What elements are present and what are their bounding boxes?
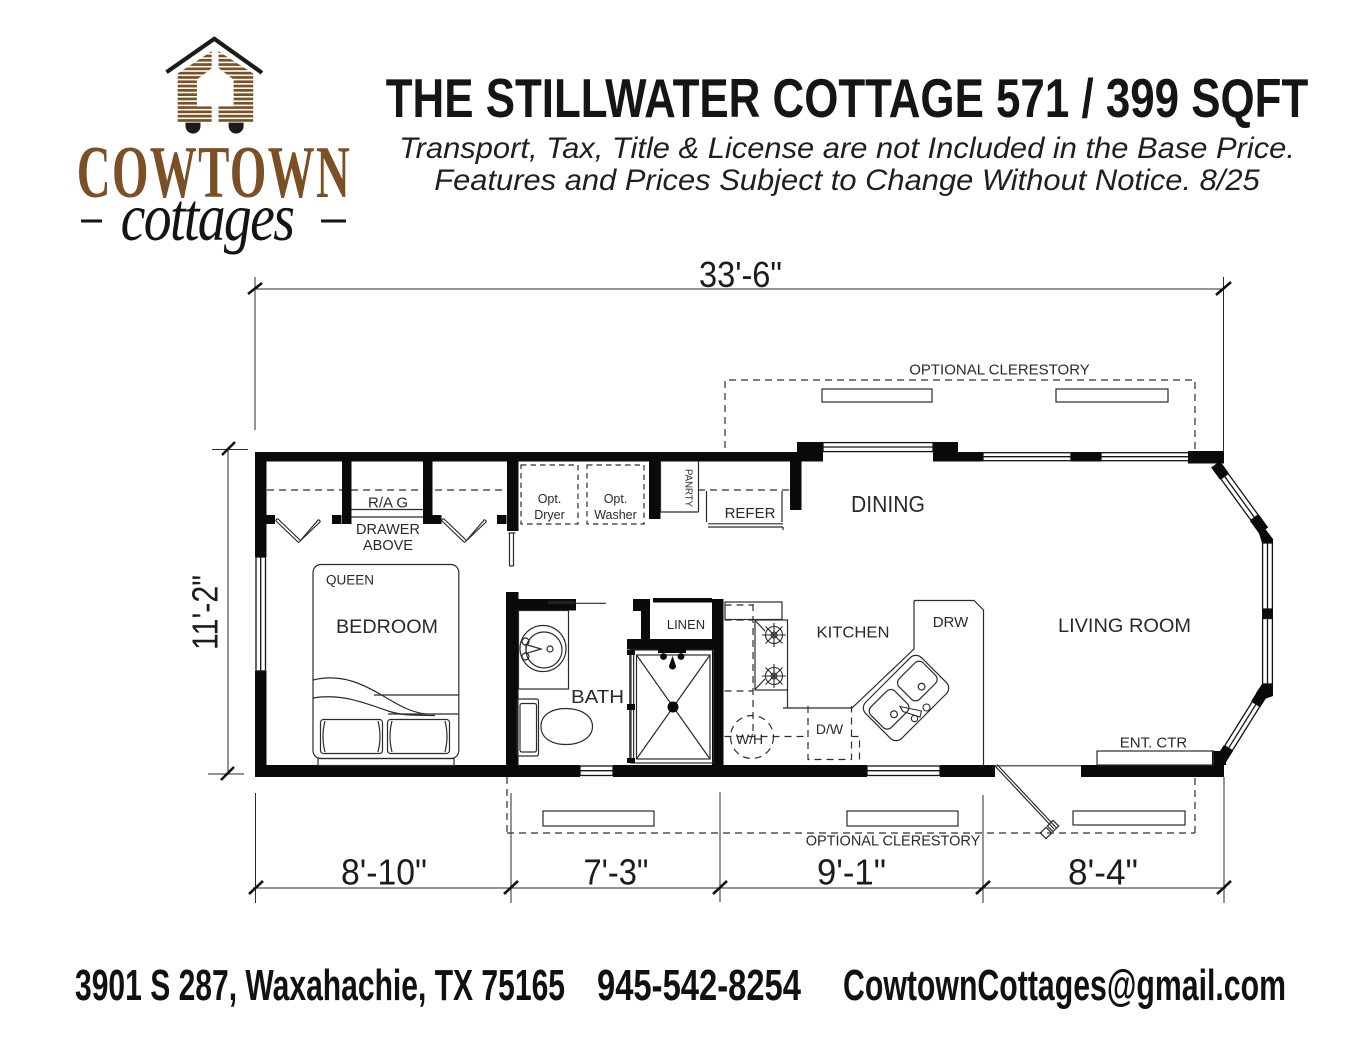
svg-text:D/W: D/W <box>816 721 844 737</box>
svg-text:PANRTY: PANRTY <box>683 469 694 507</box>
svg-text:Features and Prices Subject to: Features and Prices Subject to Change Wi… <box>434 163 1260 196</box>
svg-text:REFER: REFER <box>725 505 776 522</box>
svg-text:BEDROOM: BEDROOM <box>336 616 438 638</box>
svg-text:Transport, Tax, Title & Licens: Transport, Tax, Title & License are not … <box>399 131 1295 164</box>
svg-text:Opt.: Opt. <box>604 492 628 506</box>
svg-text:BATH: BATH <box>571 687 624 707</box>
svg-text:33'-6": 33'-6" <box>699 254 782 295</box>
svg-text:7'-3": 7'-3" <box>584 852 649 893</box>
svg-text:DINING: DINING <box>851 491 925 517</box>
svg-text:9'-1": 9'-1" <box>817 852 886 893</box>
svg-text:W/H: W/H <box>736 731 763 747</box>
svg-text:THE STILLWATER COTTAGE 571 / 3: THE STILLWATER COTTAGE 571 / 399 SQFT <box>386 67 1309 129</box>
svg-text:CowtownCottages@gmail.com: CowtownCottages@gmail.com <box>843 961 1286 1010</box>
svg-text:945-542-8254: 945-542-8254 <box>597 961 801 1010</box>
svg-text:QUEEN: QUEEN <box>326 573 374 588</box>
svg-text:Washer: Washer <box>594 508 637 522</box>
svg-text:ABOVE: ABOVE <box>363 538 413 554</box>
svg-text:8'-10": 8'-10" <box>341 852 427 893</box>
svg-text:DRAWER: DRAWER <box>356 522 420 538</box>
svg-text:3901 S 287, Waxahachie, TX 751: 3901 S 287, Waxahachie, TX 75165 <box>75 961 565 1010</box>
svg-text:Dryer: Dryer <box>534 508 565 522</box>
svg-text:LIVING ROOM: LIVING ROOM <box>1058 615 1191 637</box>
svg-text:ENT. CTR: ENT. CTR <box>1120 735 1188 752</box>
svg-text:Opt.: Opt. <box>538 492 562 506</box>
svg-text:LINEN: LINEN <box>667 617 705 632</box>
svg-text:KITCHEN: KITCHEN <box>817 625 890 642</box>
svg-text:OPTIONAL CLERESTORY: OPTIONAL CLERESTORY <box>806 834 981 850</box>
svg-text:R/A G: R/A G <box>368 495 408 512</box>
svg-text:DRW: DRW <box>933 614 969 631</box>
svg-text:OPTIONAL CLERESTORY: OPTIONAL CLERESTORY <box>909 362 1090 379</box>
svg-text:11'-2": 11'-2" <box>185 575 226 650</box>
svg-text:cottages: cottages <box>121 181 294 255</box>
svg-text:8'-4": 8'-4" <box>1068 852 1138 893</box>
